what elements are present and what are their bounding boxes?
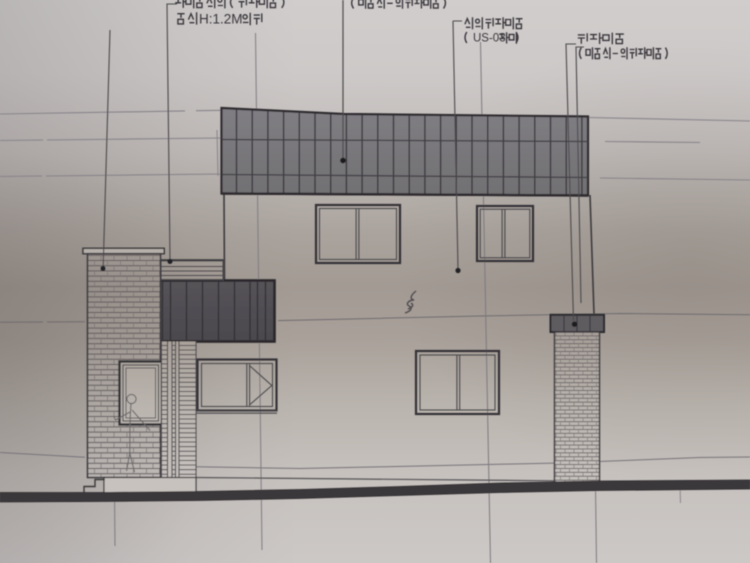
svg-text:H:1.2M: H:1.2M (199, 12, 243, 27)
svg-text:US-03: US-03 (473, 33, 506, 45)
